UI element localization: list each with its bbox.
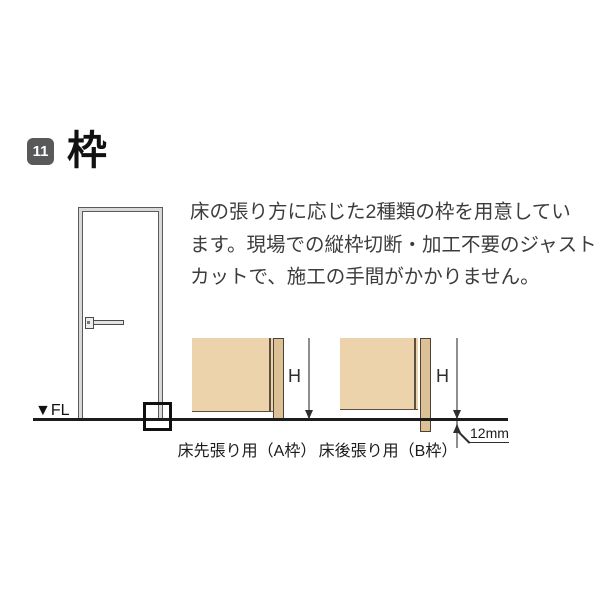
diagram-a-caption: 床先張り用（A枠） (178, 437, 317, 461)
section-number-badge: 11 (27, 138, 54, 165)
description-line: カットで、施工の手間がかかりません。 (190, 261, 590, 294)
catalog-page: { "header": { "badge": "11", "title": "枠… (0, 0, 600, 600)
door-handle-keyhole (87, 321, 90, 324)
section-title: 枠 (67, 129, 108, 173)
description-paragraph: 床の張り方に応じた2種類の枠を用意してい ます。現場での縦枠切断・加工不要のジャ… (190, 196, 590, 294)
door-handle-lever (93, 320, 124, 325)
dimension-leader-underline (469, 442, 509, 444)
wall-edge-line-a (269, 338, 271, 412)
height-dimension-label-a: H (288, 366, 301, 387)
diagram-b-caption: 床後張り用（B枠） (319, 437, 458, 461)
wall-section-a (192, 338, 273, 412)
dimension-line-a (308, 338, 310, 419)
frame-member-a (273, 338, 284, 420)
description-line: ます。現場での縦枠切断・加工不要のジャスト (190, 229, 590, 262)
floor-line (33, 418, 508, 421)
door-elevation-drawing (78, 207, 163, 420)
fl-marker: ▼FL (35, 402, 70, 420)
arrow-down-icon (453, 410, 461, 419)
offset-dimension-label: 12mm (470, 425, 509, 441)
wall-edge-line-b (414, 338, 416, 410)
door-slab (82, 211, 159, 419)
height-dimension-label-b: H (436, 366, 449, 387)
arrow-down-icon (305, 410, 313, 419)
detail-highlight-box (143, 402, 172, 431)
wall-section-b (340, 338, 418, 410)
description-line: 床の張り方に応じた2種類の枠を用意してい (190, 196, 590, 229)
